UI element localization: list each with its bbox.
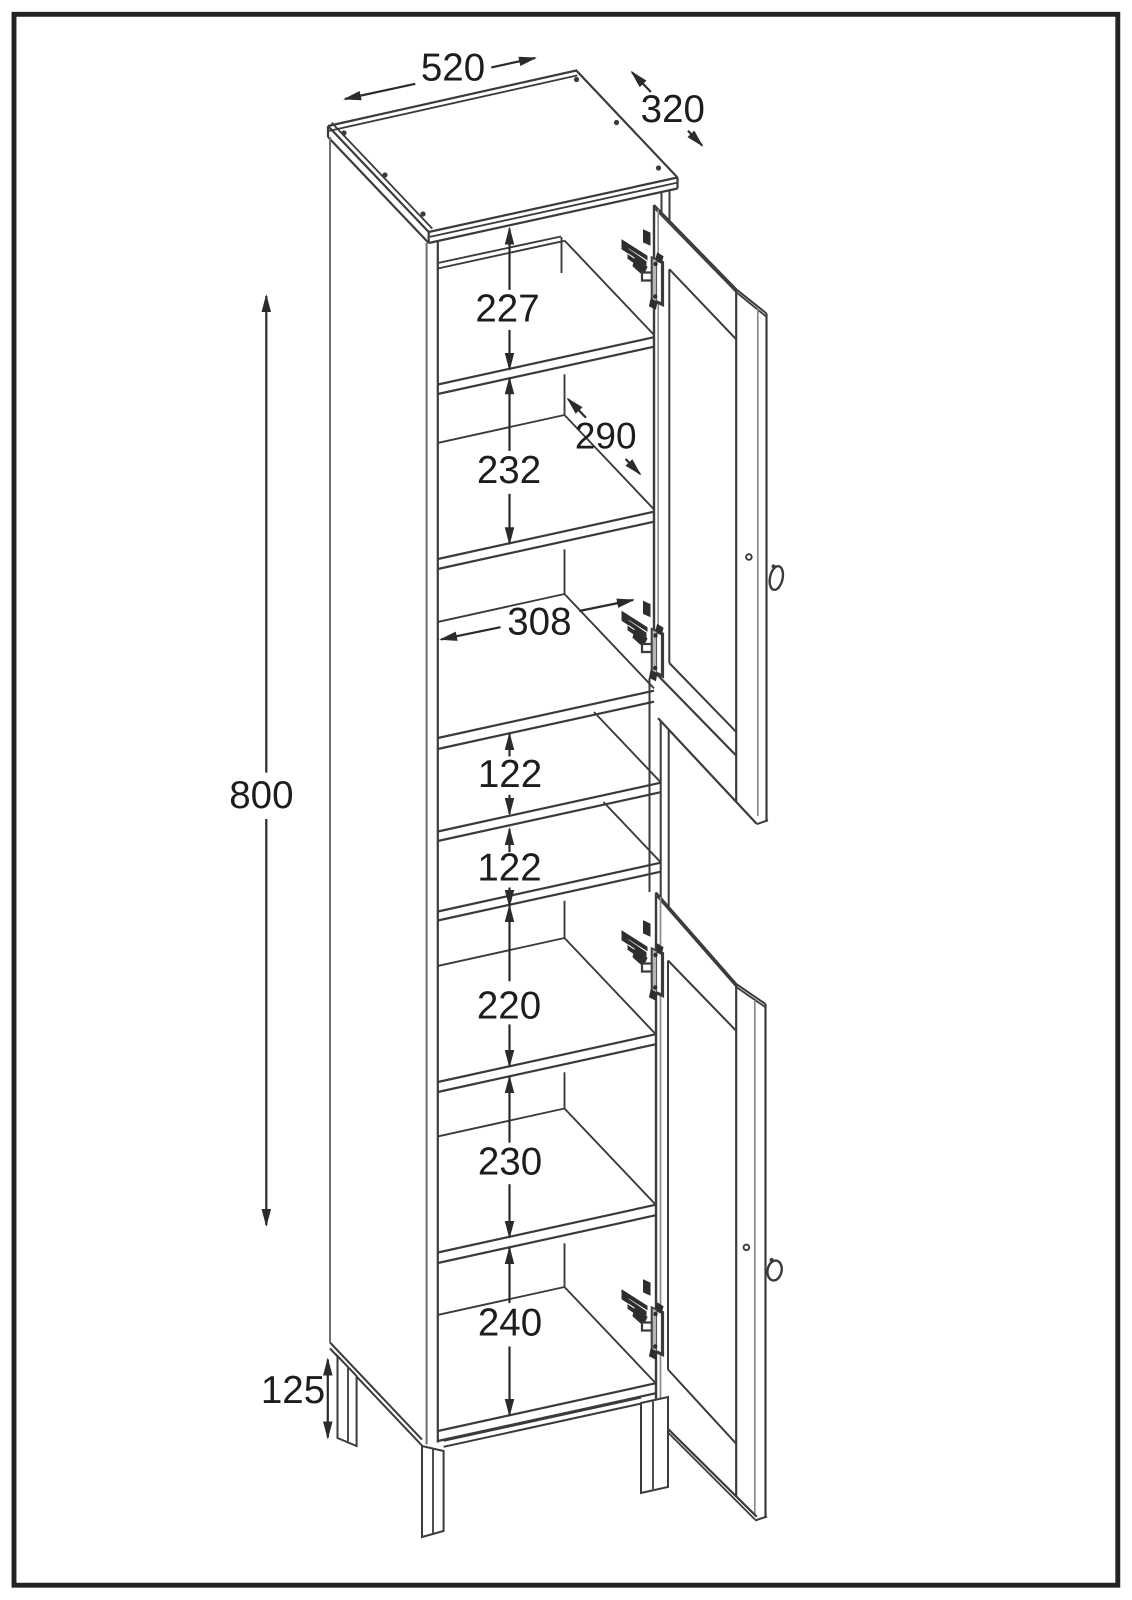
svg-text:122: 122 bbox=[478, 753, 542, 796]
svg-text:227: 227 bbox=[475, 288, 539, 331]
svg-text:308: 308 bbox=[507, 600, 571, 643]
svg-text:800: 800 bbox=[229, 774, 293, 817]
svg-text:220: 220 bbox=[477, 985, 541, 1028]
svg-text:125: 125 bbox=[261, 1369, 325, 1412]
svg-text:290: 290 bbox=[575, 415, 637, 456]
svg-text:232: 232 bbox=[477, 449, 541, 492]
svg-text:230: 230 bbox=[478, 1141, 542, 1184]
svg-text:122: 122 bbox=[477, 846, 541, 889]
svg-text:320: 320 bbox=[641, 88, 705, 131]
svg-text:520: 520 bbox=[421, 47, 485, 90]
svg-text:240: 240 bbox=[478, 1301, 542, 1344]
